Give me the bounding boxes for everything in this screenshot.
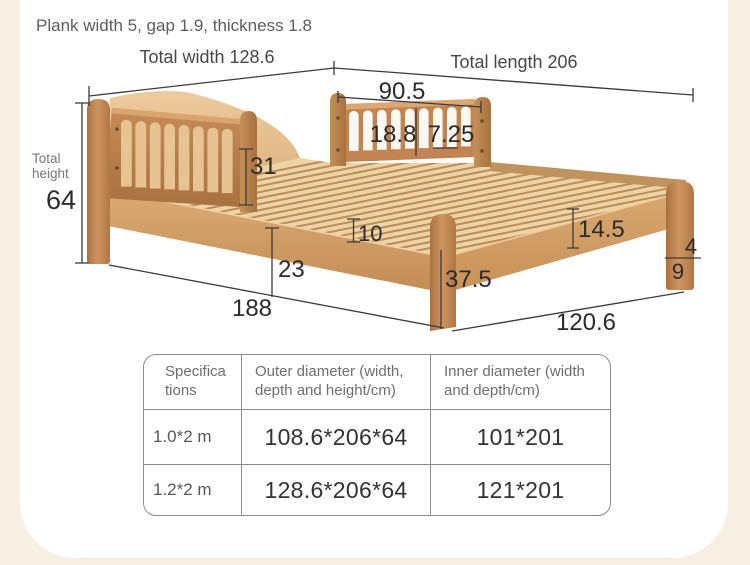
table-row-1-outer: 108.6*206*64 [241, 409, 430, 464]
foot-upper-value: 4 [685, 234, 697, 259]
side-rail-value: 14.5 [578, 216, 625, 243]
total-height-label-block: Total height 64 [32, 152, 78, 216]
table-row-1-inner: 101*201 [430, 409, 610, 464]
table-row-1-spec: 1.0*2 m [144, 409, 241, 464]
total-width-label: Total width 128.6 [139, 47, 274, 67]
spec-table-header-outer: Outer diameter (width, depth and height/… [241, 355, 430, 409]
far-rail-left-post [330, 93, 346, 166]
bed-dimension-diagram: Plank width 5, gap 1.9, thickness 1.8 To… [0, 0, 750, 350]
guard-height-value: 31 [250, 153, 277, 180]
span-left-value: 188 [232, 295, 272, 322]
frame-thickness-value: 10 [358, 221, 382, 246]
spec-table-header-inner: Inner diameter (width and depth/cm) [430, 355, 610, 409]
table-row-2-inner: 121*201 [430, 464, 610, 515]
total-height-value: 64 [32, 185, 78, 216]
head-post [87, 99, 110, 264]
slat-width-value: 7.25 [428, 121, 475, 148]
leg-height-value: 37.5 [445, 266, 492, 293]
total-height-caption: Total height [32, 152, 78, 182]
foot-lower-value: 9 [672, 259, 684, 284]
span-right-value: 120.6 [556, 309, 616, 336]
bed-spec-sheet: Plank width 5, gap 1.9, thickness 1.8 To… [0, 0, 750, 565]
total-length-label: Total length 206 [450, 52, 577, 72]
spec-table: Specifica tions Outer diameter (width, d… [143, 354, 611, 516]
table-row-2-outer: 128.6*206*64 [241, 464, 430, 515]
spec-table-header-specifications: Specifica tions [144, 355, 241, 409]
slat-spacing-value: 18.8 [370, 121, 417, 148]
table-row-2-spec: 1.2*2 m [144, 464, 241, 515]
guard-rail-width-value: 90.5 [379, 78, 426, 105]
plank-note: Plank width 5, gap 1.9, thickness 1.8 [36, 16, 312, 35]
far-rail-right-post [474, 97, 491, 167]
clearance-value: 23 [278, 256, 305, 283]
